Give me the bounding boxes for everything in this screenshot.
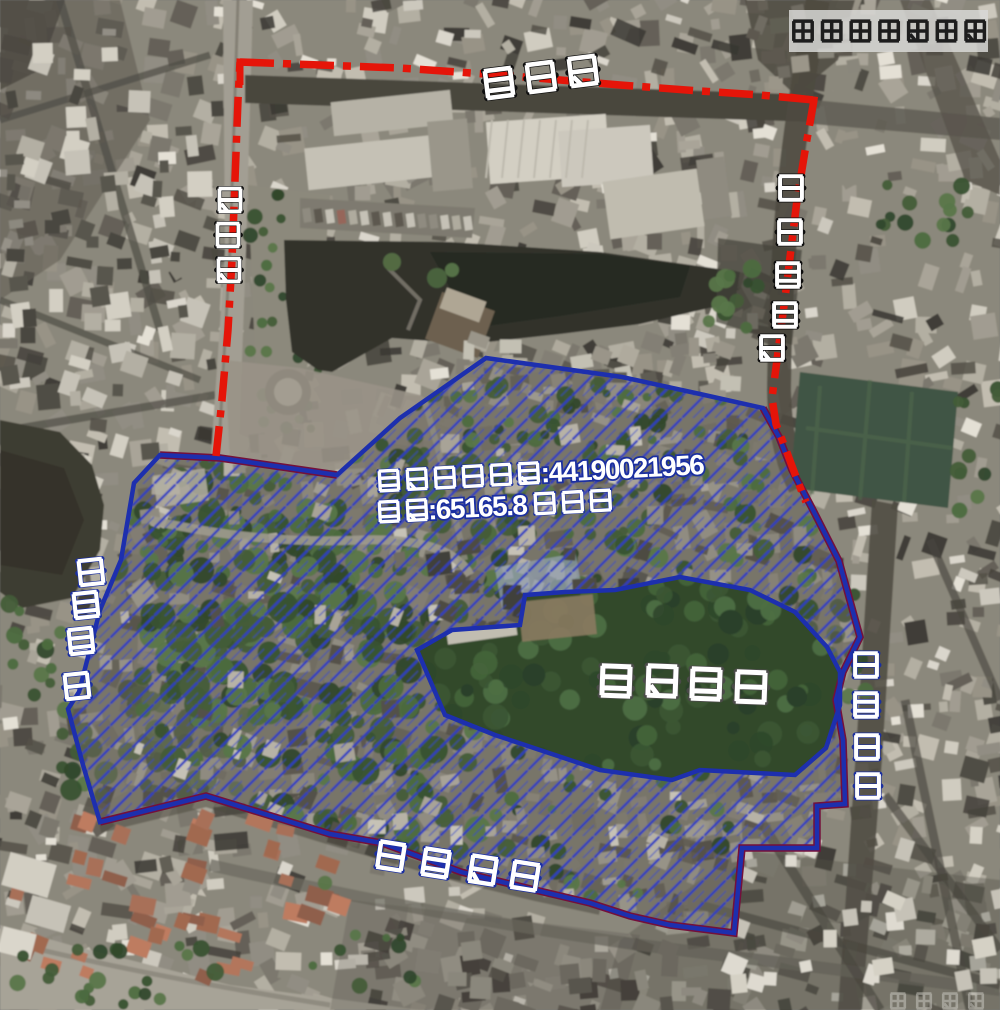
svg-text::65165.8: :65165.8 — [427, 489, 528, 525]
